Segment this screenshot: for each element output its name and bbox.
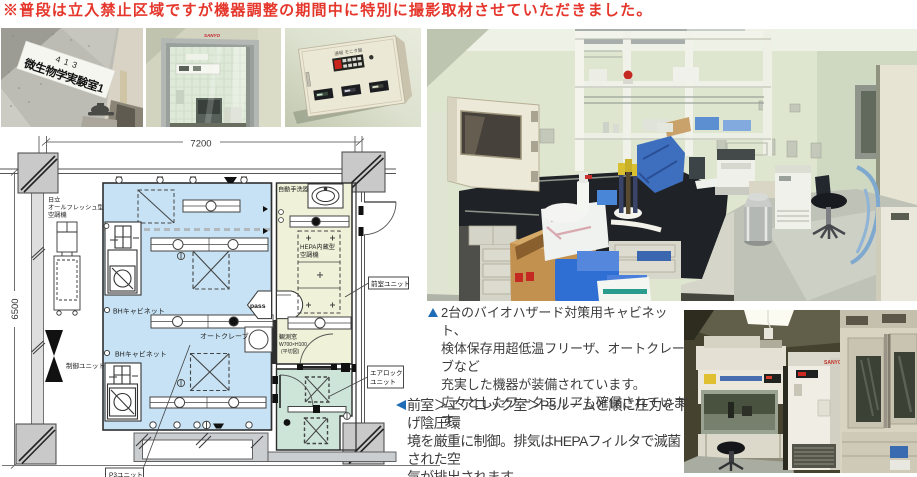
svg-text:SANYO: SANYO: [824, 360, 842, 366]
svg-text:BHキャビネット: BHキャビネット: [115, 350, 167, 359]
svg-text:観測窓: 観測窓: [279, 333, 297, 341]
svg-text:P3ユニット: P3ユニット: [109, 472, 143, 477]
svg-text:pass: pass: [250, 303, 266, 310]
svg-text:6500: 6500: [10, 298, 21, 319]
svg-text:オートクレーブ: オートクレーブ: [200, 332, 249, 341]
svg-text:オールフレッシュ型: オールフレッシュ型: [48, 204, 104, 212]
svg-text:空調機: 空調機: [48, 211, 67, 219]
svg-text:BHキャビネット: BHキャビネット: [113, 307, 165, 316]
svg-text:SANYO: SANYO: [204, 33, 221, 38]
svg-text:前室ユニット: 前室ユニット: [371, 279, 410, 288]
svg-text:(平切図): (平切図): [281, 348, 300, 355]
svg-text:7200: 7200: [190, 139, 211, 150]
svg-text:自動手洗器: 自動手洗器: [278, 186, 310, 194]
svg-text:ユニット: ユニット: [370, 379, 396, 386]
svg-text:空調機: 空調機: [300, 251, 319, 259]
svg-text:制御ユニット: 制御ユニット: [66, 361, 105, 370]
svg-text:日立: 日立: [48, 196, 60, 204]
svg-text:HEPA内蔵型: HEPA内蔵型: [300, 243, 335, 251]
svg-text:エアロック: エアロック: [370, 369, 403, 377]
svg-text:W700×H100: W700×H100: [279, 342, 307, 348]
